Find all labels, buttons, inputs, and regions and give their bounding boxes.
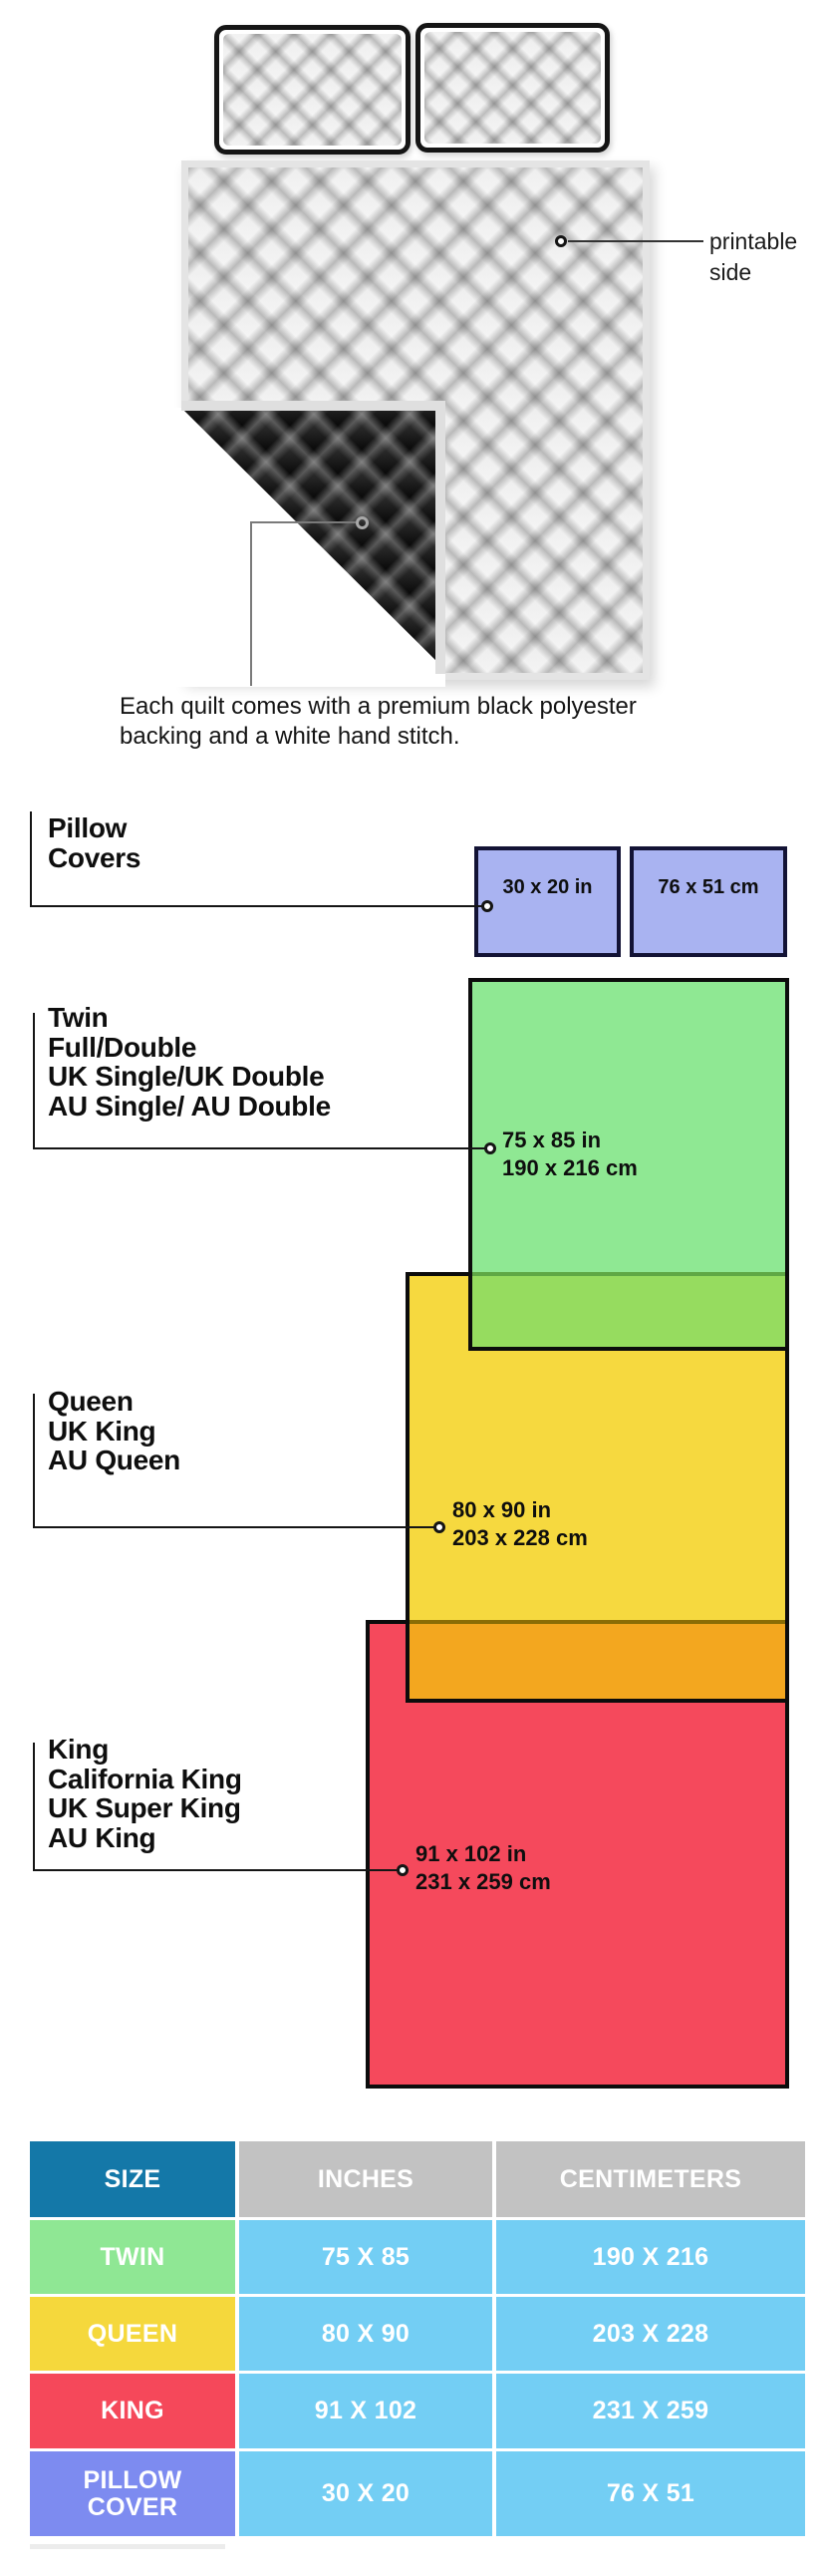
queen-king-overlap-strip (410, 1620, 785, 1699)
pillow-right (415, 23, 610, 153)
queen-measurement-cm: 203 x 228 cm (452, 1524, 588, 1552)
printable-side-dot (555, 235, 567, 247)
printable-side-label: printable side (709, 226, 797, 288)
table-row-pillow-cover-size-text: PILLOW COVER (66, 2467, 200, 2521)
table-row-queen-centimeters: 203 X 228 (496, 2297, 805, 2371)
table-row-pillow-cover-size: PILLOW COVER (30, 2451, 235, 2536)
quilt-illustration: printable side Each quilt comes with a p… (0, 0, 825, 758)
king-measurement-cm: 231 x 259 cm (415, 1868, 551, 1896)
fold-right-binding (435, 411, 445, 674)
pillow-cover-rect-inches: 30 x 20 in (474, 846, 621, 957)
king-label: King California King UK Super King AU Ki… (48, 1735, 242, 1852)
backing-caption: Each quilt comes with a premium black po… (120, 692, 637, 752)
king-bracket-dot (397, 1864, 409, 1876)
pillow-covers-label-line2: Covers (48, 843, 140, 873)
table-row-queen-size: QUEEN (30, 2297, 235, 2371)
table-row-pillow-cover-inches: 30 X 20 (239, 2451, 492, 2536)
king-label-line2: California King (48, 1765, 242, 1794)
fold-top-binding (181, 401, 445, 411)
queen-label: Queen UK King AU Queen (48, 1387, 180, 1475)
table-row-twin-size: TWIN (30, 2220, 235, 2294)
pillow-left-quilting (223, 34, 402, 146)
size-table: SIZE INCHES CENTIMETERS TWIN 75 X 85 190… (30, 2141, 805, 2536)
queen-label-line2: UK King (48, 1417, 180, 1447)
king-measurement: 91 x 102 in 231 x 259 cm (415, 1840, 551, 1896)
twin-measurement-cm: 190 x 216 cm (502, 1154, 638, 1182)
printable-side-label-line1: printable (709, 226, 797, 257)
twin-queen-overlap-strip (472, 1272, 785, 1347)
printable-side-label-line2: side (709, 257, 797, 288)
pillow-covers-label-line1: Pillow (48, 813, 140, 843)
king-bracket-horizontal (33, 1869, 399, 1871)
table-header-inches: INCHES (239, 2141, 492, 2217)
pillow-cover-size-inches: 30 x 20 in (502, 876, 592, 953)
pillow-bracket-horizontal (30, 905, 482, 907)
pillow-cover-size-cm: 76 x 51 cm (658, 876, 758, 953)
queen-measurement-inches: 80 x 90 in (452, 1496, 588, 1524)
twin-bracket-dot (484, 1142, 496, 1154)
table-row-pillow-cover-centimeters: 76 X 51 (496, 2451, 805, 2536)
king-label-line4: AU King (48, 1823, 242, 1853)
table-row-king-inches: 91 X 102 (239, 2374, 492, 2448)
king-label-line3: UK Super King (48, 1793, 242, 1823)
pillow-right-quilting (424, 32, 601, 144)
table-row-twin-centimeters: 190 X 216 (496, 2220, 805, 2294)
pillow-covers-label: Pillow Covers (48, 813, 140, 872)
queen-bracket-vertical (33, 1394, 35, 1528)
table-shadow-artifact (30, 2544, 225, 2549)
twin-label-line4: AU Single/ AU Double (48, 1092, 331, 1122)
backing-dot (356, 516, 369, 529)
twin-label: Twin Full/Double UK Single/UK Double AU … (48, 1003, 331, 1121)
twin-measurement: 75 x 85 in 190 x 216 cm (502, 1127, 638, 1182)
twin-label-line1: Twin (48, 1003, 331, 1033)
table-row-king-size: KING (30, 2374, 235, 2448)
queen-bracket-horizontal (33, 1526, 435, 1528)
table-row-twin-inches: 75 X 85 (239, 2220, 492, 2294)
backing-caption-line2: backing and a white hand stitch. (120, 722, 637, 752)
table-row-king-centimeters: 231 X 259 (496, 2374, 805, 2448)
backing-line-vertical (250, 521, 252, 686)
king-measurement-inches: 91 x 102 in (415, 1840, 551, 1868)
queen-measurement: 80 x 90 in 203 x 228 cm (452, 1496, 588, 1552)
twin-bracket-vertical (33, 1013, 35, 1149)
backing-line-horizontal (250, 521, 356, 523)
queen-label-line3: AU Queen (48, 1446, 180, 1475)
table-row-queen-inches: 80 X 90 (239, 2297, 492, 2371)
twin-label-line2: Full/Double (48, 1033, 331, 1063)
quilt-size-infographic: printable side Each quilt comes with a p… (0, 0, 825, 2576)
pillow-left (214, 25, 411, 155)
twin-bracket-horizontal (33, 1147, 486, 1149)
pillow-bracket-vertical (30, 811, 32, 907)
backing-caption-line1: Each quilt comes with a premium black po… (120, 692, 637, 722)
pillow-bracket-dot (481, 900, 493, 912)
table-header-size: SIZE (30, 2141, 235, 2217)
printable-side-line (568, 240, 703, 242)
king-bracket-vertical (33, 1743, 35, 1871)
table-header-centimeters: CENTIMETERS (496, 2141, 805, 2217)
queen-bracket-dot (433, 1521, 445, 1533)
queen-label-line1: Queen (48, 1387, 180, 1417)
twin-label-line3: UK Single/UK Double (48, 1062, 331, 1092)
king-label-line1: King (48, 1735, 242, 1765)
twin-measurement-inches: 75 x 85 in (502, 1127, 638, 1154)
pillow-cover-rect-cm: 76 x 51 cm (630, 846, 787, 957)
